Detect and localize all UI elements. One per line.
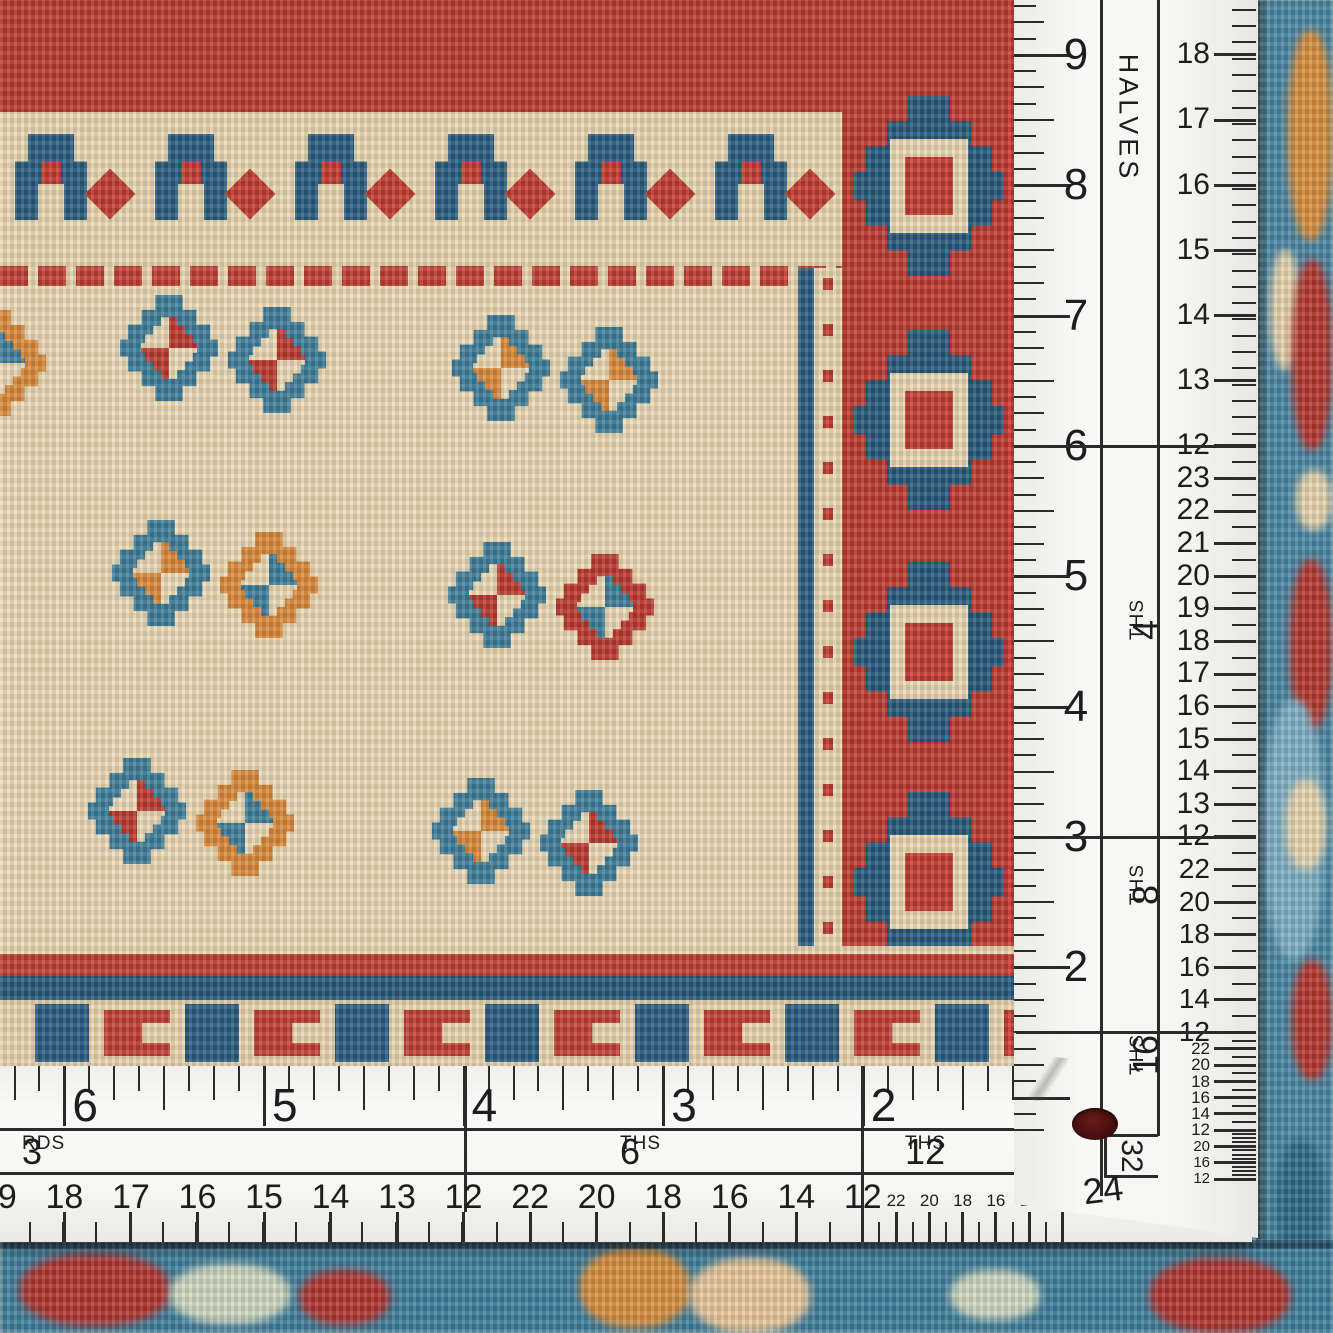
ruler-tick (1214, 1047, 1256, 1050)
ruler-tick (1214, 770, 1256, 773)
ruler-tick (1014, 494, 1036, 496)
ruler-tick (612, 1066, 614, 1100)
ruler-tick (1014, 477, 1044, 479)
ruler-tick (1014, 233, 1036, 235)
rug-gul-core (0, 332, 25, 394)
ruler-tick (438, 1066, 440, 1091)
ruler-tick (1014, 657, 1036, 659)
ruler-tick (1214, 575, 1256, 578)
ruler-tick (1232, 433, 1256, 435)
ruler-tick (1014, 934, 1044, 936)
inch-number: 2 (1056, 945, 1096, 989)
ruler-tick (1014, 608, 1044, 610)
ruler-tick (1232, 367, 1256, 369)
rug-hook-core (181, 162, 201, 184)
ruler-tick (1232, 351, 1256, 353)
ruler-tick (1232, 1154, 1256, 1156)
ruler-tick (1232, 1105, 1256, 1107)
ruler-tick (1014, 152, 1044, 154)
ruler-tick (1214, 1129, 1256, 1132)
ruler-tick (994, 1212, 997, 1242)
rug-band-block-core (905, 853, 953, 911)
ruler-tick (1232, 1133, 1256, 1135)
ruler-tick (837, 1066, 839, 1091)
ruler-tick (138, 1066, 140, 1091)
ruler-tick (1214, 249, 1256, 252)
scale-number: 15 (1156, 724, 1210, 754)
ruler-tick (1214, 933, 1256, 936)
ruler-tick (1014, 640, 1054, 642)
ruler-tick (1214, 868, 1256, 871)
ruler-tick (1014, 592, 1036, 594)
ruler-tick (1014, 1113, 1036, 1115)
ruler-tick (1214, 998, 1256, 1001)
ruler-section-line (1016, 445, 1256, 448)
scale-number: 18 (1156, 920, 1210, 948)
ruler-tick (1232, 852, 1256, 854)
ruler-tick (1014, 950, 1036, 952)
scale-number: 19 (1156, 593, 1210, 623)
scale-number: 18 (38, 1180, 90, 1214)
scale-number: 12 (438, 1180, 490, 1214)
ruler-tick (1232, 416, 1256, 418)
ruler-tick (1232, 820, 1256, 822)
ruler-tick (1232, 787, 1256, 789)
ruler-tick (213, 1066, 215, 1100)
ruler-tick (1232, 1170, 1256, 1172)
ruler-tick (862, 1222, 864, 1242)
scale-number: 18 (1156, 39, 1210, 69)
ruler-tick (1214, 1096, 1256, 1099)
ruler-tick (1232, 1072, 1256, 1074)
inch-number: 5 (1056, 554, 1096, 598)
ruler-tick (1014, 168, 1036, 170)
ruler-tick (587, 1066, 589, 1091)
ruler-tick (1014, 787, 1036, 789)
ruler-tick (1214, 1112, 1256, 1115)
ruler-tick (878, 1222, 880, 1242)
ruler-tick (1214, 966, 1256, 969)
scale-number: 16 (171, 1180, 223, 1214)
ruler-tick (562, 1066, 564, 1110)
inch-number: 5 (272, 1082, 298, 1128)
ruler-tick (1214, 640, 1256, 643)
ruler-tick (1232, 318, 1256, 320)
ruler-tick (1014, 380, 1054, 382)
ruler-tick (196, 1212, 199, 1242)
ruler-tick (1214, 705, 1256, 708)
rug-gutter-stripe (814, 268, 842, 968)
ruler-tick (1012, 1222, 1014, 1242)
ruler-tick (113, 1066, 115, 1100)
rug-band-block-core (905, 391, 953, 449)
ruler-tick (1232, 1158, 1256, 1160)
ruler-tick (1214, 607, 1256, 610)
ruler-tick (1014, 901, 1054, 903)
ruler-tick (1232, 270, 1256, 272)
ruler-tick (1232, 1166, 1256, 1168)
ruler-tick (1214, 803, 1256, 806)
rug-hook-core (741, 162, 761, 184)
ruler-tick (228, 1222, 230, 1242)
rug-gul-core (141, 317, 198, 379)
ruler-tick (329, 1212, 332, 1242)
ruler-tick (1232, 58, 1256, 60)
ruler-tick (1014, 282, 1044, 284)
rug-bottom-block (635, 1004, 689, 1062)
rug-hook-core (321, 162, 341, 184)
ruler-tick (1014, 135, 1036, 137)
rug-bottom-block (185, 1004, 239, 1062)
ruler-tick (396, 1212, 399, 1242)
ruler-tick (29, 1222, 31, 1242)
ruler-tick (1214, 477, 1256, 480)
ruler-tick (829, 1222, 831, 1242)
ruler-tick (1214, 673, 1256, 676)
ruler-tick (1232, 74, 1256, 76)
inch-number: 9 (1056, 33, 1096, 77)
ruler-tick (388, 1066, 390, 1091)
ruler-tick (1014, 119, 1054, 121)
rug-gul-core (469, 564, 526, 626)
ruler-tick (188, 1066, 190, 1091)
scale-number: 13 (1156, 365, 1210, 395)
ruler-tick (338, 1066, 340, 1091)
ruler-tick (1214, 1080, 1256, 1083)
ruler-tick (1014, 298, 1036, 300)
scale-number: 20 (1156, 561, 1210, 591)
ruler-tick (1232, 592, 1256, 594)
ruler-tick (962, 1066, 964, 1110)
ruler-tick (1214, 1145, 1256, 1148)
ruler-tick (1014, 885, 1036, 887)
ruler-tick (1014, 5, 1036, 7)
ruler-tick (1014, 624, 1036, 626)
ruler-tick (1014, 266, 1036, 268)
ruler-tick (1232, 917, 1256, 919)
ruler-tick (1232, 156, 1256, 158)
ruler-tick (1214, 510, 1256, 513)
ruler-tick (1232, 253, 1256, 255)
ruler-tick (1014, 38, 1036, 40)
ruler-tick (1014, 200, 1036, 202)
ruler-tick (1232, 237, 1256, 239)
scale-number: 14 (1156, 300, 1210, 330)
ruler-tick (363, 1066, 365, 1110)
rug-gul-core (453, 800, 510, 862)
ruler-tick (1232, 950, 1256, 952)
ruler-tick (1232, 302, 1256, 304)
ruler-tick (263, 1212, 266, 1242)
ruler-tick (1014, 722, 1036, 724)
ruler-tick (163, 1066, 165, 1110)
ruler-tick (529, 1212, 532, 1242)
ruler-tick (1214, 53, 1256, 56)
ruler-tick (1014, 999, 1044, 1001)
ruler-tick (1014, 412, 1044, 414)
rug-field-divider (798, 268, 814, 968)
scale-number: 16 (1156, 691, 1210, 721)
ruler-tick (912, 1222, 914, 1242)
scale-number-24: 24 (1081, 1170, 1125, 1211)
ruler-tick (1232, 188, 1256, 190)
scale-number: 13 (371, 1180, 423, 1214)
ruler-tick (1232, 9, 1256, 11)
ruler-tick (1014, 803, 1044, 805)
scale-number: 14 (770, 1180, 822, 1214)
ruler-tick (1014, 70, 1036, 72)
ruler-tick (1232, 123, 1256, 125)
ruler-tick (1232, 722, 1256, 724)
inch-number: 7 (1056, 294, 1096, 338)
scale-number: 22 (1156, 495, 1210, 525)
ruler-tick (1232, 885, 1256, 887)
ruler-tick (1232, 689, 1256, 691)
rug-bottom-block (785, 1004, 839, 1062)
ruler-tick (1014, 738, 1044, 740)
ruler-tick (1232, 286, 1256, 288)
rug-gul-core (561, 812, 618, 874)
ruler-tick (1014, 461, 1036, 463)
scale-number: 19 (0, 1180, 24, 1214)
ruler-tick (1232, 25, 1256, 27)
ruler-tick (1014, 917, 1036, 919)
ruler-tick (1214, 738, 1256, 741)
ruler-tick (1232, 335, 1256, 337)
ruler-tick (895, 1212, 898, 1242)
ruler-tick (1014, 689, 1036, 691)
ruler-tick (1014, 1048, 1036, 1050)
rug-gul-core (109, 780, 166, 842)
ruler-tick (1232, 657, 1256, 659)
rug-gul-core (241, 554, 298, 616)
rug-band-block-core (905, 157, 953, 215)
scale-number: 22 (504, 1180, 556, 1214)
ruler-tick (1214, 119, 1256, 122)
rug-gul-core (133, 542, 190, 604)
rug-gul-core (577, 576, 634, 638)
ruler-tick (662, 1066, 665, 1126)
ruler-tick (945, 1222, 947, 1242)
ruler-tick (1014, 526, 1036, 528)
ruler-tick (1232, 1141, 1256, 1143)
ruler-tick (1014, 363, 1036, 365)
ruler-tick (95, 1222, 97, 1242)
ruler-tick (1232, 139, 1256, 141)
ruler-tick (1014, 673, 1044, 675)
ruler-tick (1232, 1137, 1256, 1139)
ruler-tick (1014, 754, 1036, 756)
ruler-tick (63, 1212, 66, 1242)
ruler-tick (1214, 1178, 1256, 1181)
rug-gul-core (217, 792, 274, 854)
scale-number: 14 (1156, 756, 1210, 786)
ruler-rivet-hole (1072, 1108, 1118, 1140)
ruler-tick (1014, 983, 1036, 985)
scale-number: 12 (1156, 1171, 1210, 1186)
ruler-tick (937, 1066, 939, 1091)
ruler-tick (1014, 543, 1044, 545)
rug-bottom-block (335, 1004, 389, 1062)
ruler-tick (1232, 1015, 1256, 1017)
ruler-tick (1232, 494, 1256, 496)
ruler-tick (762, 1222, 764, 1242)
ruler-tick (361, 1222, 363, 1242)
ruler-tick (1014, 510, 1054, 512)
inch-number: 2 (871, 1082, 897, 1128)
ruler-tick (1014, 820, 1036, 822)
ruler-tick (1014, 771, 1054, 773)
ruler-tick (737, 1066, 739, 1091)
ruler-tick (129, 1212, 132, 1242)
ruler-tick (513, 1066, 515, 1100)
ruler-tick (1232, 1040, 1256, 1042)
ruler-tick (1014, 559, 1036, 561)
rug-photo-with-rulers: 6543219181716151413122220181614122220181… (0, 0, 1333, 1333)
ruler-tick (912, 1066, 914, 1100)
ruler-tick (463, 1066, 466, 1126)
ruler-tick (1232, 90, 1256, 92)
scale-number: 21 (1156, 528, 1210, 558)
ruler-tick (795, 1212, 798, 1242)
scale-number: 14 (305, 1180, 357, 1214)
ruler-tick (313, 1066, 315, 1100)
ruler-tick (562, 1222, 564, 1242)
ruler-tick (1232, 559, 1256, 561)
rug-gul-core (581, 349, 638, 411)
rug-hook-core (41, 162, 61, 184)
ruler-tick (413, 1066, 415, 1100)
ruler-tick (1232, 400, 1256, 402)
scale-number: 17 (105, 1180, 157, 1214)
scale-number: 23 (1156, 463, 1210, 493)
ruler-tick (463, 1222, 465, 1242)
ruler-tick (1014, 396, 1036, 398)
scale-number: 18 (637, 1180, 689, 1214)
ruler-tick (1214, 542, 1256, 545)
ruler-tick (1232, 983, 1256, 985)
ruler-tick (14, 1066, 16, 1100)
scale-number: 19 (1156, 0, 1210, 4)
rug-band-block-core (905, 623, 953, 681)
ruler-tick (1232, 41, 1256, 43)
ruler-tick (1232, 384, 1256, 386)
ruler-tick (662, 1212, 665, 1242)
scale-number: 16 (1156, 953, 1210, 981)
ruler-tick (1014, 347, 1044, 349)
ruler-tick (295, 1222, 297, 1242)
ruler-tick (1045, 1222, 1047, 1242)
ruler-tick (428, 1222, 430, 1242)
ruler-section-line (1016, 836, 1256, 839)
ruler-tick (1232, 204, 1256, 206)
ruler-tick (1232, 624, 1256, 626)
rug-hook-core (601, 162, 621, 184)
ruler-tick (862, 1066, 865, 1126)
ruler-tick (1214, 901, 1256, 904)
ruler-tick (38, 1066, 40, 1091)
ruler-tick (1014, 1015, 1036, 1017)
ruler-tick (637, 1066, 639, 1091)
ruler-tick (1214, 379, 1256, 382)
ruler-tick (787, 1066, 789, 1091)
scale-number: 17 (1156, 104, 1210, 134)
scale-number: 20 (571, 1180, 623, 1214)
ruler-tick (1232, 1089, 1256, 1091)
ruler-tick (537, 1066, 539, 1091)
ruler-tick (1232, 1121, 1256, 1123)
scale-number: 18 (1156, 1073, 1210, 1090)
rug-bottom-block (935, 1004, 989, 1062)
scale-number: 16 (1156, 170, 1210, 200)
scale-label-halves: HALVES (1113, 54, 1144, 183)
ruler-tick (1028, 1212, 1031, 1242)
ruler-tick (1232, 1174, 1256, 1176)
ruler-tick (1061, 1212, 1064, 1242)
inch-number: 4 (1056, 685, 1096, 729)
ruler-tick (1014, 21, 1044, 23)
ruler-tick (1014, 86, 1044, 88)
scale-number: 15 (238, 1180, 290, 1214)
ruler-tick (978, 1222, 980, 1242)
inch-number: 4 (472, 1082, 498, 1128)
rug-gul-core (249, 329, 306, 391)
ruler-tick (1014, 103, 1036, 105)
ruler-tick (1014, 217, 1044, 219)
ruler-tick (762, 1066, 764, 1110)
scale-number: 17 (1156, 658, 1210, 688)
ruler-tick (1214, 1064, 1256, 1067)
ruler-tick (162, 1222, 164, 1242)
ruler-tick (712, 1066, 714, 1100)
ruler-tick (1214, 184, 1256, 187)
scale-number: 16 (704, 1180, 756, 1214)
rug-bottom-block (35, 1004, 89, 1062)
ruler-tick (1232, 221, 1256, 223)
ruler-tick (1232, 526, 1256, 528)
ruler-tick (1232, 461, 1256, 463)
rug-gul-core (473, 337, 530, 399)
ruler-tick (629, 1222, 631, 1242)
rug-stripe (0, 954, 1016, 976)
ruler-tick (1014, 869, 1044, 871)
scale-number: 20 (1156, 1139, 1210, 1154)
ruler-tick (1014, 331, 1036, 333)
inch-number: 6 (72, 1082, 98, 1128)
ruler-tick (1014, 1129, 1044, 1131)
ruler-tick (1232, 1056, 1256, 1058)
ruler-tick (1232, 1149, 1256, 1151)
rug-stripe (0, 976, 1016, 1000)
ruler-tick (1232, 754, 1256, 756)
inch-number: 8 (1056, 163, 1096, 207)
inch-number: 3 (671, 1082, 697, 1128)
rug-bottom-teal-border (0, 1240, 1333, 1333)
ruler-tick (1014, 249, 1054, 251)
ruler-tick (1214, 1161, 1256, 1164)
ruler-tick (812, 1066, 814, 1100)
ruler-tick (928, 1212, 931, 1242)
scale-number: 16 (1156, 1155, 1210, 1170)
scale-number: 22 (1156, 855, 1210, 883)
scale-number: 14 (1156, 985, 1210, 1013)
rug-hook-core (461, 162, 481, 184)
rug-bottom-block (485, 1004, 539, 1062)
ruler-tick (1014, 429, 1036, 431)
ruler-tick (1014, 852, 1036, 854)
ruler-tick (263, 1066, 266, 1126)
ruler-tick (728, 1212, 731, 1242)
